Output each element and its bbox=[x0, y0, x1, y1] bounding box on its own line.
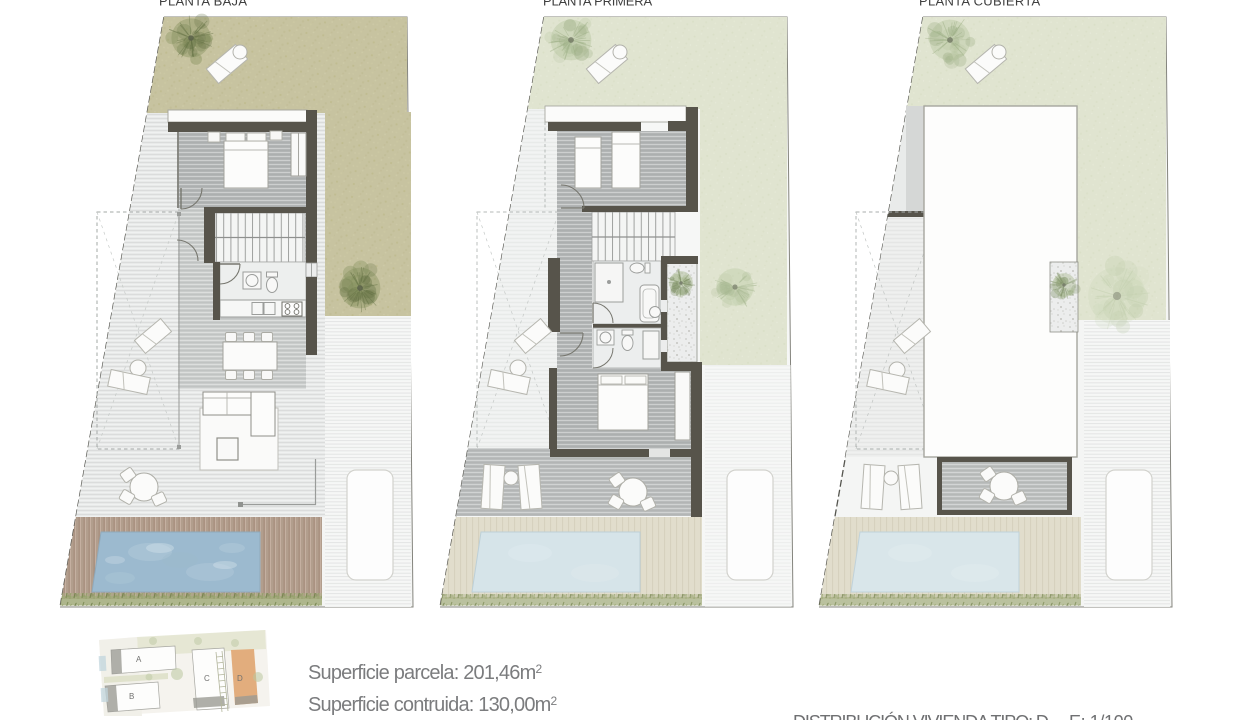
svg-text:DISTRIBUCIÓN VIVIENDA TIPO: D: DISTRIBUCIÓN VIVIENDA TIPO: D bbox=[793, 711, 1049, 720]
svg-text:PLANTA BAJA: PLANTA BAJA bbox=[159, 0, 247, 9]
svg-text:PLANTA CUBIERTA: PLANTA CUBIERTA bbox=[919, 0, 1041, 9]
svg-text:Superficie parcela: 201,46m2: Superficie parcela: 201,46m2 bbox=[308, 662, 542, 684]
svg-text:B: B bbox=[129, 692, 134, 701]
svg-text:E: 1/100: E: 1/100 bbox=[1069, 712, 1133, 720]
svg-text:A: A bbox=[136, 655, 142, 664]
svg-text:PLANTA PRIMERA: PLANTA PRIMERA bbox=[543, 0, 652, 9]
svg-text:C: C bbox=[204, 674, 210, 683]
svg-text:Superficie contruida: 130,00m2: Superficie contruida: 130,00m2 bbox=[308, 694, 558, 716]
svg-text:D: D bbox=[237, 674, 243, 683]
